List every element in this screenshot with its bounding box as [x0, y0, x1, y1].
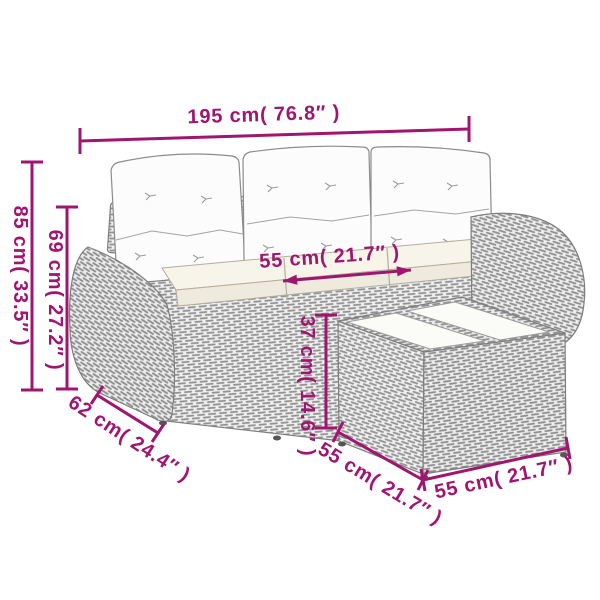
dimension-stool-height-label: 37 cm( 14.6″ ) [296, 316, 318, 457]
dimension-diagram: 195 cm( 76.8″ ) 85 cm( 33.5″ ) 69 cm( 27… [0, 0, 600, 600]
dimension-total-width-label: 195 cm( 76.8″ ) [187, 102, 340, 129]
dimension-end-cap [152, 424, 164, 442]
dimension-total-height: 85 cm( 33.5″ ) [9, 162, 43, 390]
sofa-foot [273, 436, 281, 441]
dimension-total-height-label: 85 cm( 33.5″ ) [9, 206, 31, 347]
dimension-back-height-label: 69 cm( 27.2″ ) [44, 230, 66, 371]
dimension-line [80, 129, 469, 141]
sofa-set-dimension-drawing: 195 cm( 76.8″ ) 85 cm( 33.5″ ) 69 cm( 27… [0, 0, 600, 600]
